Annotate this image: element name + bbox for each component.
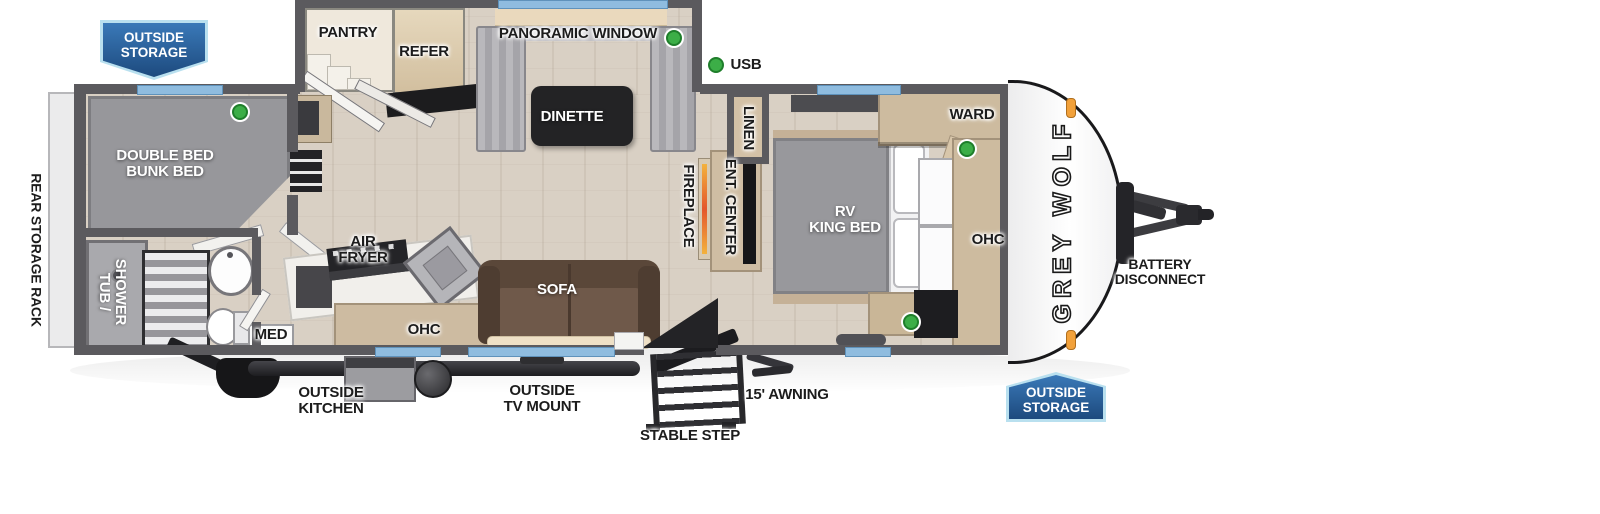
usb-indicator-dinette xyxy=(666,30,682,46)
kitchen-tall-cabinet xyxy=(296,266,332,308)
wardrobe-drawer-bottom xyxy=(918,226,956,294)
entry-landing xyxy=(614,332,644,350)
tv-mount-bracket xyxy=(520,356,564,364)
stable-step-ladder xyxy=(650,350,746,429)
sink-faucet xyxy=(227,252,233,258)
awning-label: 15' AWNING xyxy=(745,387,829,403)
dinette-label: DINETTE xyxy=(541,109,604,125)
ent-center-label: ENT. CENTER xyxy=(722,159,738,255)
sofa-label: SOFA xyxy=(537,282,577,298)
badge-outside-storage-bottom-face: OUTSIDE STORAGE xyxy=(1009,375,1103,419)
shower-door xyxy=(142,250,210,351)
pantry-label: PANTRY xyxy=(319,25,378,41)
marker-light-bottom xyxy=(1066,330,1076,350)
propane-tank xyxy=(414,360,452,398)
sofa-arm-left xyxy=(478,266,500,344)
badge-outside-storage-bottom-label: OUTSIDE STORAGE xyxy=(1009,385,1103,415)
tv xyxy=(743,158,756,264)
med-label: MED xyxy=(255,327,288,343)
sofa-seam xyxy=(568,264,571,344)
kitchen-sink-basin xyxy=(423,246,468,291)
ohc-kitchen-label: OHC xyxy=(408,322,441,338)
slide-wall-right xyxy=(692,0,702,92)
battery-disconnect-switch xyxy=(1116,182,1134,264)
tub-shower-label: TUB / SHOWER xyxy=(96,259,128,325)
usb-indicator-bunk xyxy=(232,104,248,120)
usb-legend-label: USB xyxy=(730,57,761,73)
air-fryer-label: AIR FRYER xyxy=(338,234,387,266)
window-panoramic-top xyxy=(498,0,668,9)
wardrobe-drawer-top xyxy=(918,158,956,226)
bathroom-sink xyxy=(208,246,254,296)
stable-step-label: STABLE STEP xyxy=(640,428,740,444)
bunk-ladder xyxy=(290,150,322,192)
outside-tv-mount-label: OUTSIDE TV MOUNT xyxy=(504,383,581,415)
battery-disconnect-label: BATTERY DISCONNECT xyxy=(1115,257,1206,287)
bunk-bed-label: DOUBLE BED BUNK BED xyxy=(116,148,213,180)
brand-logo: GREY WOLF xyxy=(1050,119,1077,324)
ward-label: WARD xyxy=(949,107,994,123)
outside-kitchen-label: OUTSIDE KITCHEN xyxy=(298,385,363,417)
usb-indicator-ward xyxy=(959,141,975,157)
fireplace-label: FIREPLACE xyxy=(680,164,696,247)
linen-label: LINEN xyxy=(740,106,756,150)
bunk-cabinet-opening xyxy=(297,101,319,135)
window-bunk-top xyxy=(137,85,223,95)
marker-light-top xyxy=(1066,98,1076,118)
partition-bath-right-upper xyxy=(252,237,261,295)
badge-outside-storage-top: OUTSIDE STORAGE xyxy=(100,20,208,80)
floor-plan: GREY WOLF xyxy=(0,0,1600,514)
window-sofa-bottom xyxy=(468,347,615,357)
bedroom-chest xyxy=(914,290,958,338)
griddle-lid xyxy=(346,358,414,368)
slide-wall-left xyxy=(295,0,305,92)
dinette-bench-left xyxy=(476,26,526,152)
badge-outside-storage-top-label: OUTSIDE STORAGE xyxy=(103,30,205,60)
usb-indicator-bed xyxy=(903,314,919,330)
ohc-bedroom-label: OHC xyxy=(972,232,1005,248)
badge-outside-storage-top-face: OUTSIDE STORAGE xyxy=(103,23,205,77)
partition-bunk-lower xyxy=(287,195,298,235)
wall-rear xyxy=(74,84,86,355)
partition-bunk-upper xyxy=(287,92,298,152)
window-bedroom-top xyxy=(817,85,901,95)
bedroom-dresser xyxy=(791,95,885,112)
partition-bath-top xyxy=(80,228,258,237)
window-kitchen-bottom xyxy=(375,347,441,357)
panoramic-window-label: PANORAMIC WINDOW xyxy=(499,26,657,42)
window-bedroom-bottom xyxy=(845,347,891,357)
usb-indicator-legend xyxy=(708,57,724,73)
fireplace-flame-strip xyxy=(702,164,707,254)
rear-storage-rack-label: REAR STORAGE RACK xyxy=(28,173,43,326)
hitch-ball-arm xyxy=(1198,209,1214,220)
rv-king-bed-label: RV KING BED xyxy=(809,204,881,236)
refer-label: REFER xyxy=(399,44,449,60)
